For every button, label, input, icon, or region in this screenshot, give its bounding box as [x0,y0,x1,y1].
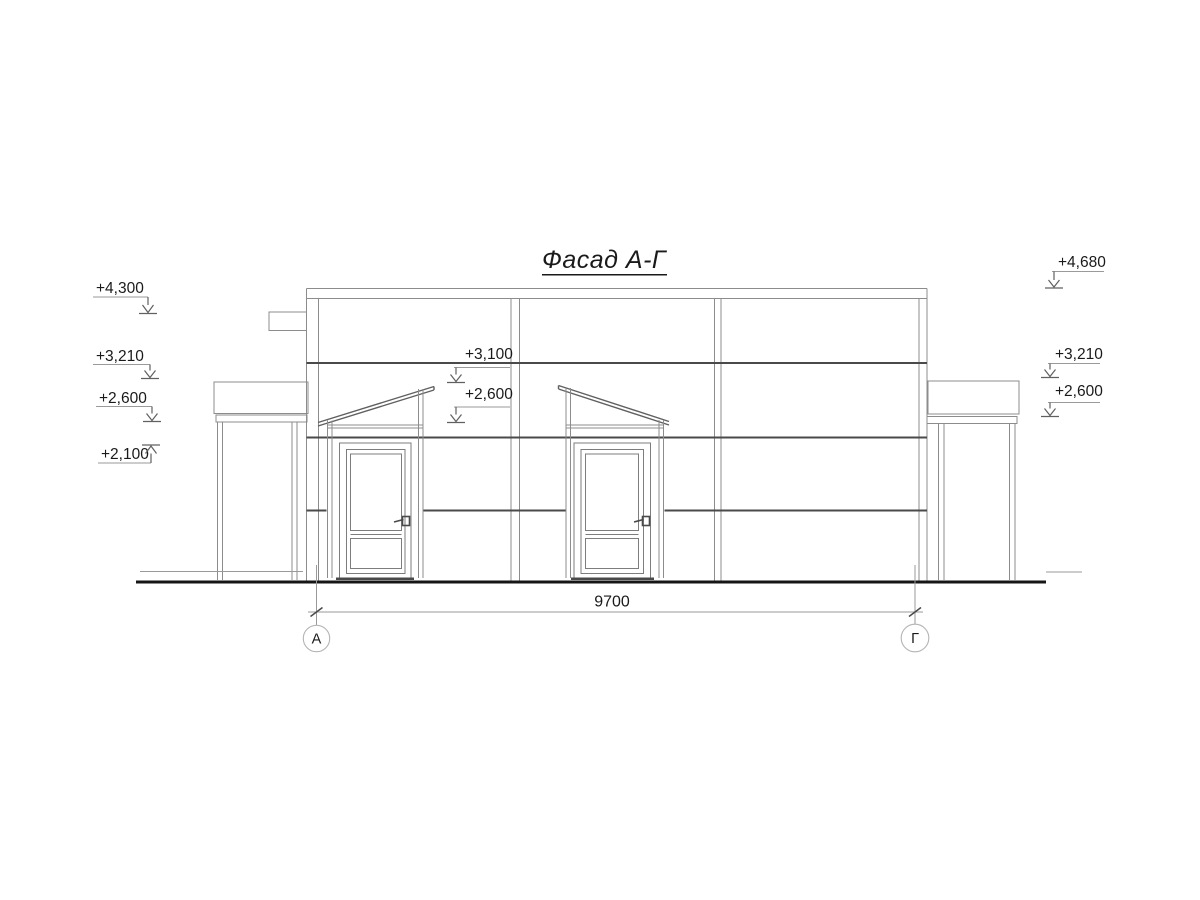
elevation-label: +3,210 [96,348,144,365]
right-wing [927,381,1019,580]
elevation-arrow-down-icon [1045,272,1063,289]
elevation-marks-middle: +3,100 +2,600 [447,346,513,423]
elevation-mark-4300: +4,300 [93,280,157,314]
facade-drawing-sheet: Фасад А-Г [0,0,1200,900]
door-2 [559,386,670,579]
door-2-bottom-panel [586,539,639,569]
elevation-arrow-down-icon [1041,364,1059,378]
elevation-arrow-down-icon [447,368,465,383]
title-text: Фасад А-Г [542,246,668,274]
door-1-handle [394,517,410,526]
elevation-arrow-down-icon [143,407,161,422]
elevation-label: +2,600 [465,386,513,403]
elevation-label: +2,600 [99,390,147,407]
elevation-mark-2600-left: +2,600 [96,390,161,422]
elevation-mark-2600-middle: +2,600 [447,386,513,423]
axis-label-g: Г [911,631,919,647]
door-1-glazing [351,454,402,531]
elevation-label: +3,210 [1055,346,1103,363]
elevation-label: +2,100 [101,446,149,463]
elevation-marks-left: +4,300 +3,210 +2,600 +2,100 [93,280,161,463]
elevation-label: +2,600 [1055,383,1103,400]
door-1-handle-plate [403,517,410,526]
elevation-mark-3210-left: +3,210 [93,348,159,379]
elevation-arrow-down-icon [139,297,157,314]
elevation-mark-2600-right: +2,600 [1041,383,1103,417]
elevation-mark-2100: +2,100 [98,445,160,463]
elevation-label: +4,680 [1058,254,1106,271]
elevation-label: +3,100 [465,346,513,363]
elevation-arrow-down-icon [141,365,159,379]
building-outline [269,289,927,582]
left-wing [214,382,308,580]
elevation-mark-3100: +3,100 [447,346,513,383]
dimension-value: 9700 [594,594,630,611]
door-1-bottom-panel [351,539,402,569]
roof-outlet-box [269,312,307,331]
elevation-marks-right: +4,680 +3,210 +2,600 [1041,254,1106,417]
door-2-canopy-slope [559,386,670,426]
axis-label-a: А [312,632,322,648]
elevation-label: +4,300 [96,280,144,297]
facade-elevation-svg: Фасад А-Г [0,0,1200,900]
door-1 [318,387,434,579]
door-2-leaf-inner [581,450,644,574]
elevation-arrow-down-icon [1041,403,1059,417]
left-wing-fascia [216,415,307,422]
door-1-canopy-slope [318,387,434,427]
left-wing-roof-box [214,382,308,414]
door-2-glazing [586,454,639,531]
drawing-title: Фасад А-Г [542,246,668,275]
elevation-mark-4680: +4,680 [1045,254,1106,288]
door-2-handle [634,517,650,526]
right-wing-roof-box [928,381,1019,414]
elevation-mark-3210-right: +3,210 [1041,346,1103,378]
right-wing-fascia [927,417,1017,424]
door-1-leaf-inner [347,450,406,574]
elevation-arrow-down-icon [447,407,465,423]
